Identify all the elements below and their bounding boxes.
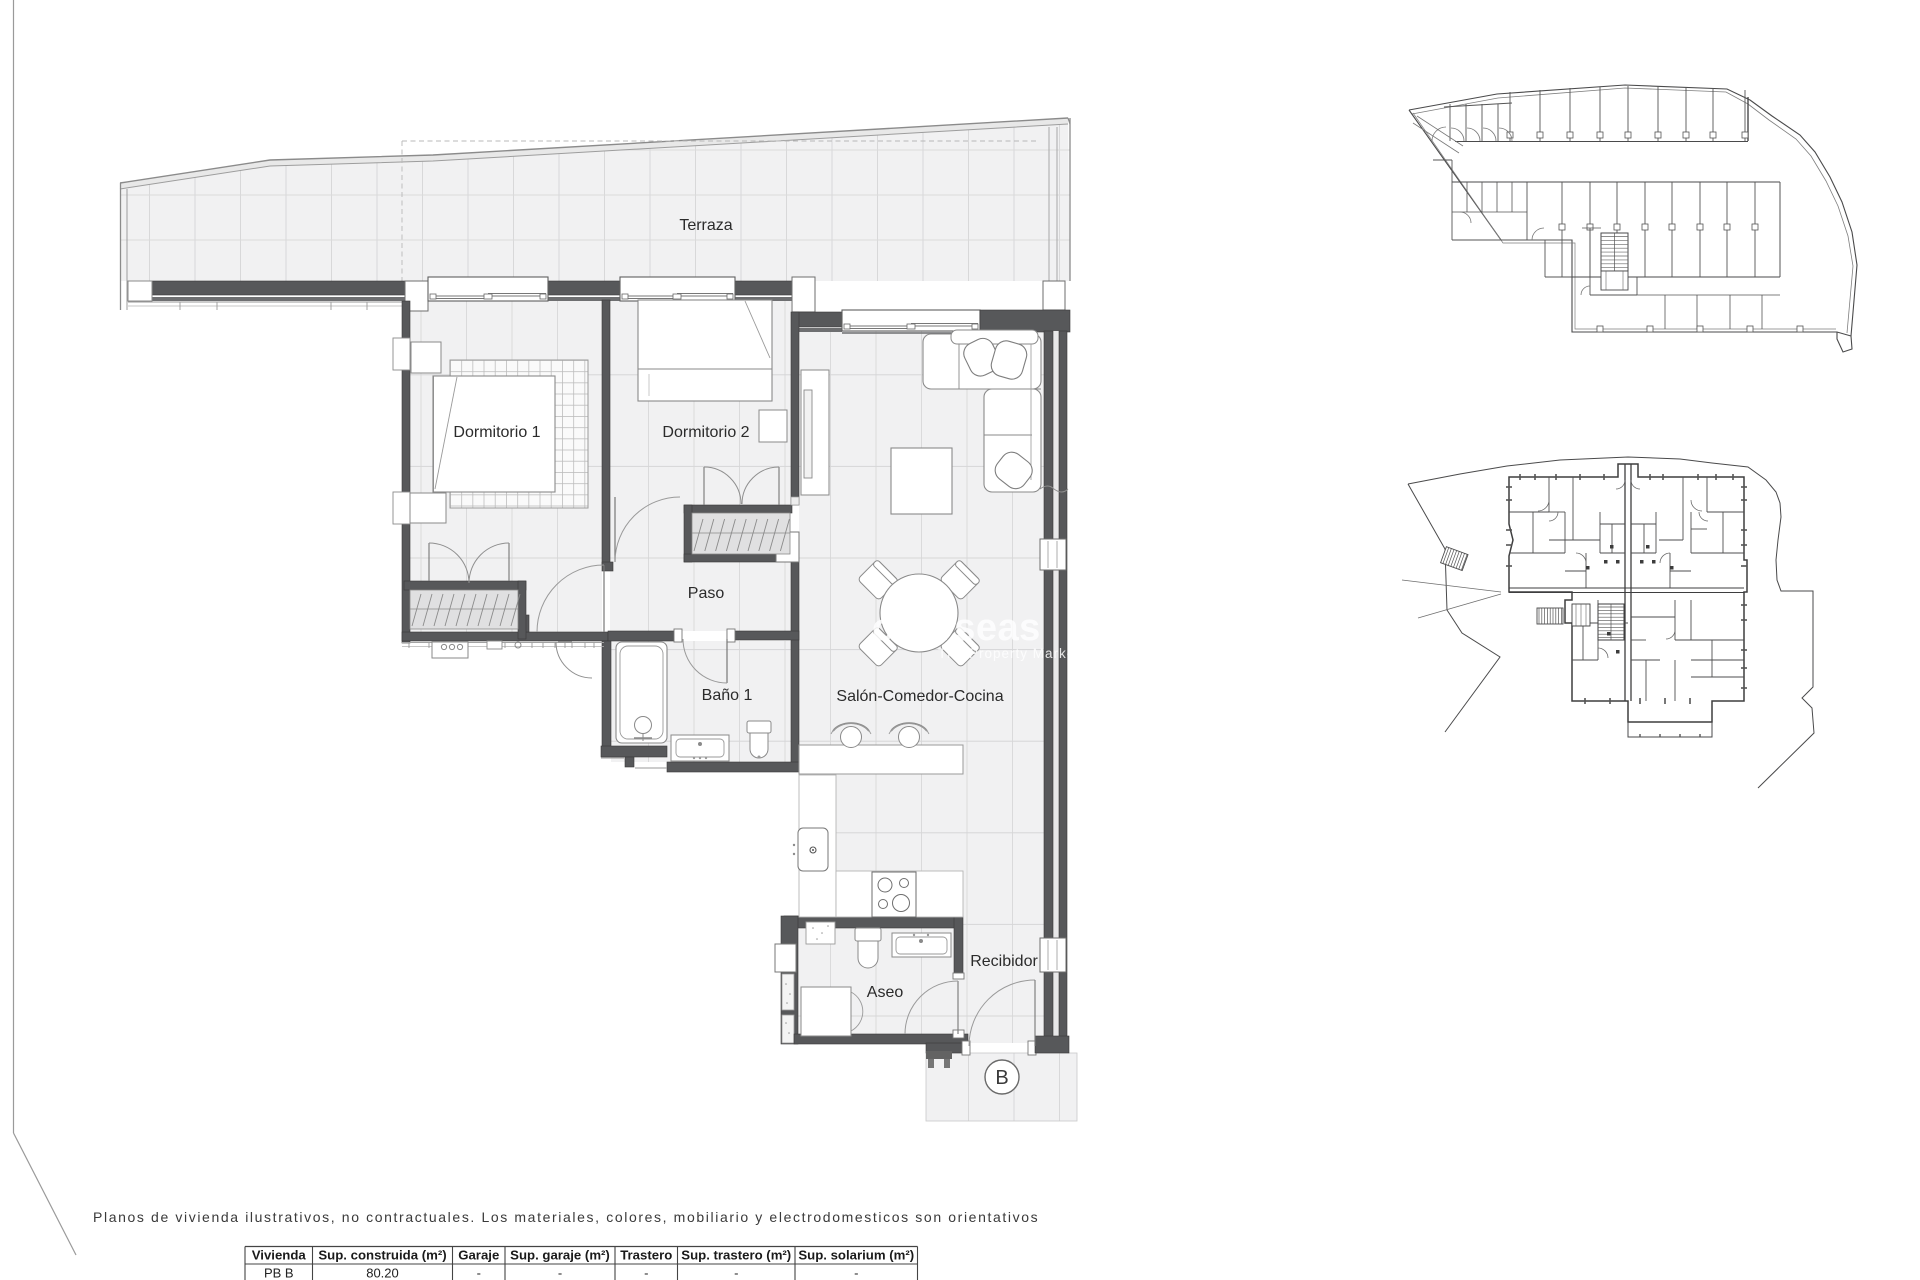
svg-text:Recibidor: Recibidor — [970, 953, 1038, 970]
svg-text:Vivienda: Vivienda — [252, 1248, 307, 1263]
svg-text:PB B: PB B — [264, 1266, 294, 1280]
svg-text:Baño 1: Baño 1 — [702, 687, 753, 704]
svg-text:Sup. solarium (m²): Sup. solarium (m²) — [798, 1248, 914, 1263]
svg-text:-: - — [644, 1266, 648, 1280]
svg-text:Sup. garaje (m²): Sup. garaje (m²) — [510, 1248, 610, 1263]
svg-text:Dormitorio 2: Dormitorio 2 — [662, 424, 749, 441]
svg-text:-: - — [558, 1266, 562, 1280]
svg-text:B: B — [995, 1067, 1008, 1089]
svg-text:The Property Market: The Property Market — [938, 646, 1080, 661]
svg-text:-: - — [734, 1266, 738, 1280]
svg-text:Trastero: Trastero — [620, 1248, 672, 1263]
svg-text:-: - — [477, 1266, 481, 1280]
svg-text:80.20: 80.20 — [366, 1266, 399, 1280]
svg-text:Dormitorio 1: Dormitorio 1 — [453, 424, 540, 441]
svg-text:Aseo: Aseo — [867, 984, 904, 1001]
svg-text:Planos de vivienda ilustrativo: Planos de vivienda ilustrativos, no cont… — [93, 1209, 1039, 1225]
svg-text:Sup. trastero (m²): Sup. trastero (m²) — [681, 1248, 791, 1263]
svg-text:Garaje: Garaje — [458, 1248, 499, 1263]
svg-text:Salón-Comedor-Cocina: Salón-Comedor-Cocina — [836, 688, 1003, 705]
svg-text:overseas: overseas — [872, 607, 1041, 649]
svg-text:Sup. construida (m²): Sup. construida (m²) — [318, 1248, 446, 1263]
svg-text:Paso: Paso — [688, 585, 725, 602]
svg-text:Terraza: Terraza — [679, 217, 732, 234]
svg-text:-: - — [854, 1266, 858, 1280]
